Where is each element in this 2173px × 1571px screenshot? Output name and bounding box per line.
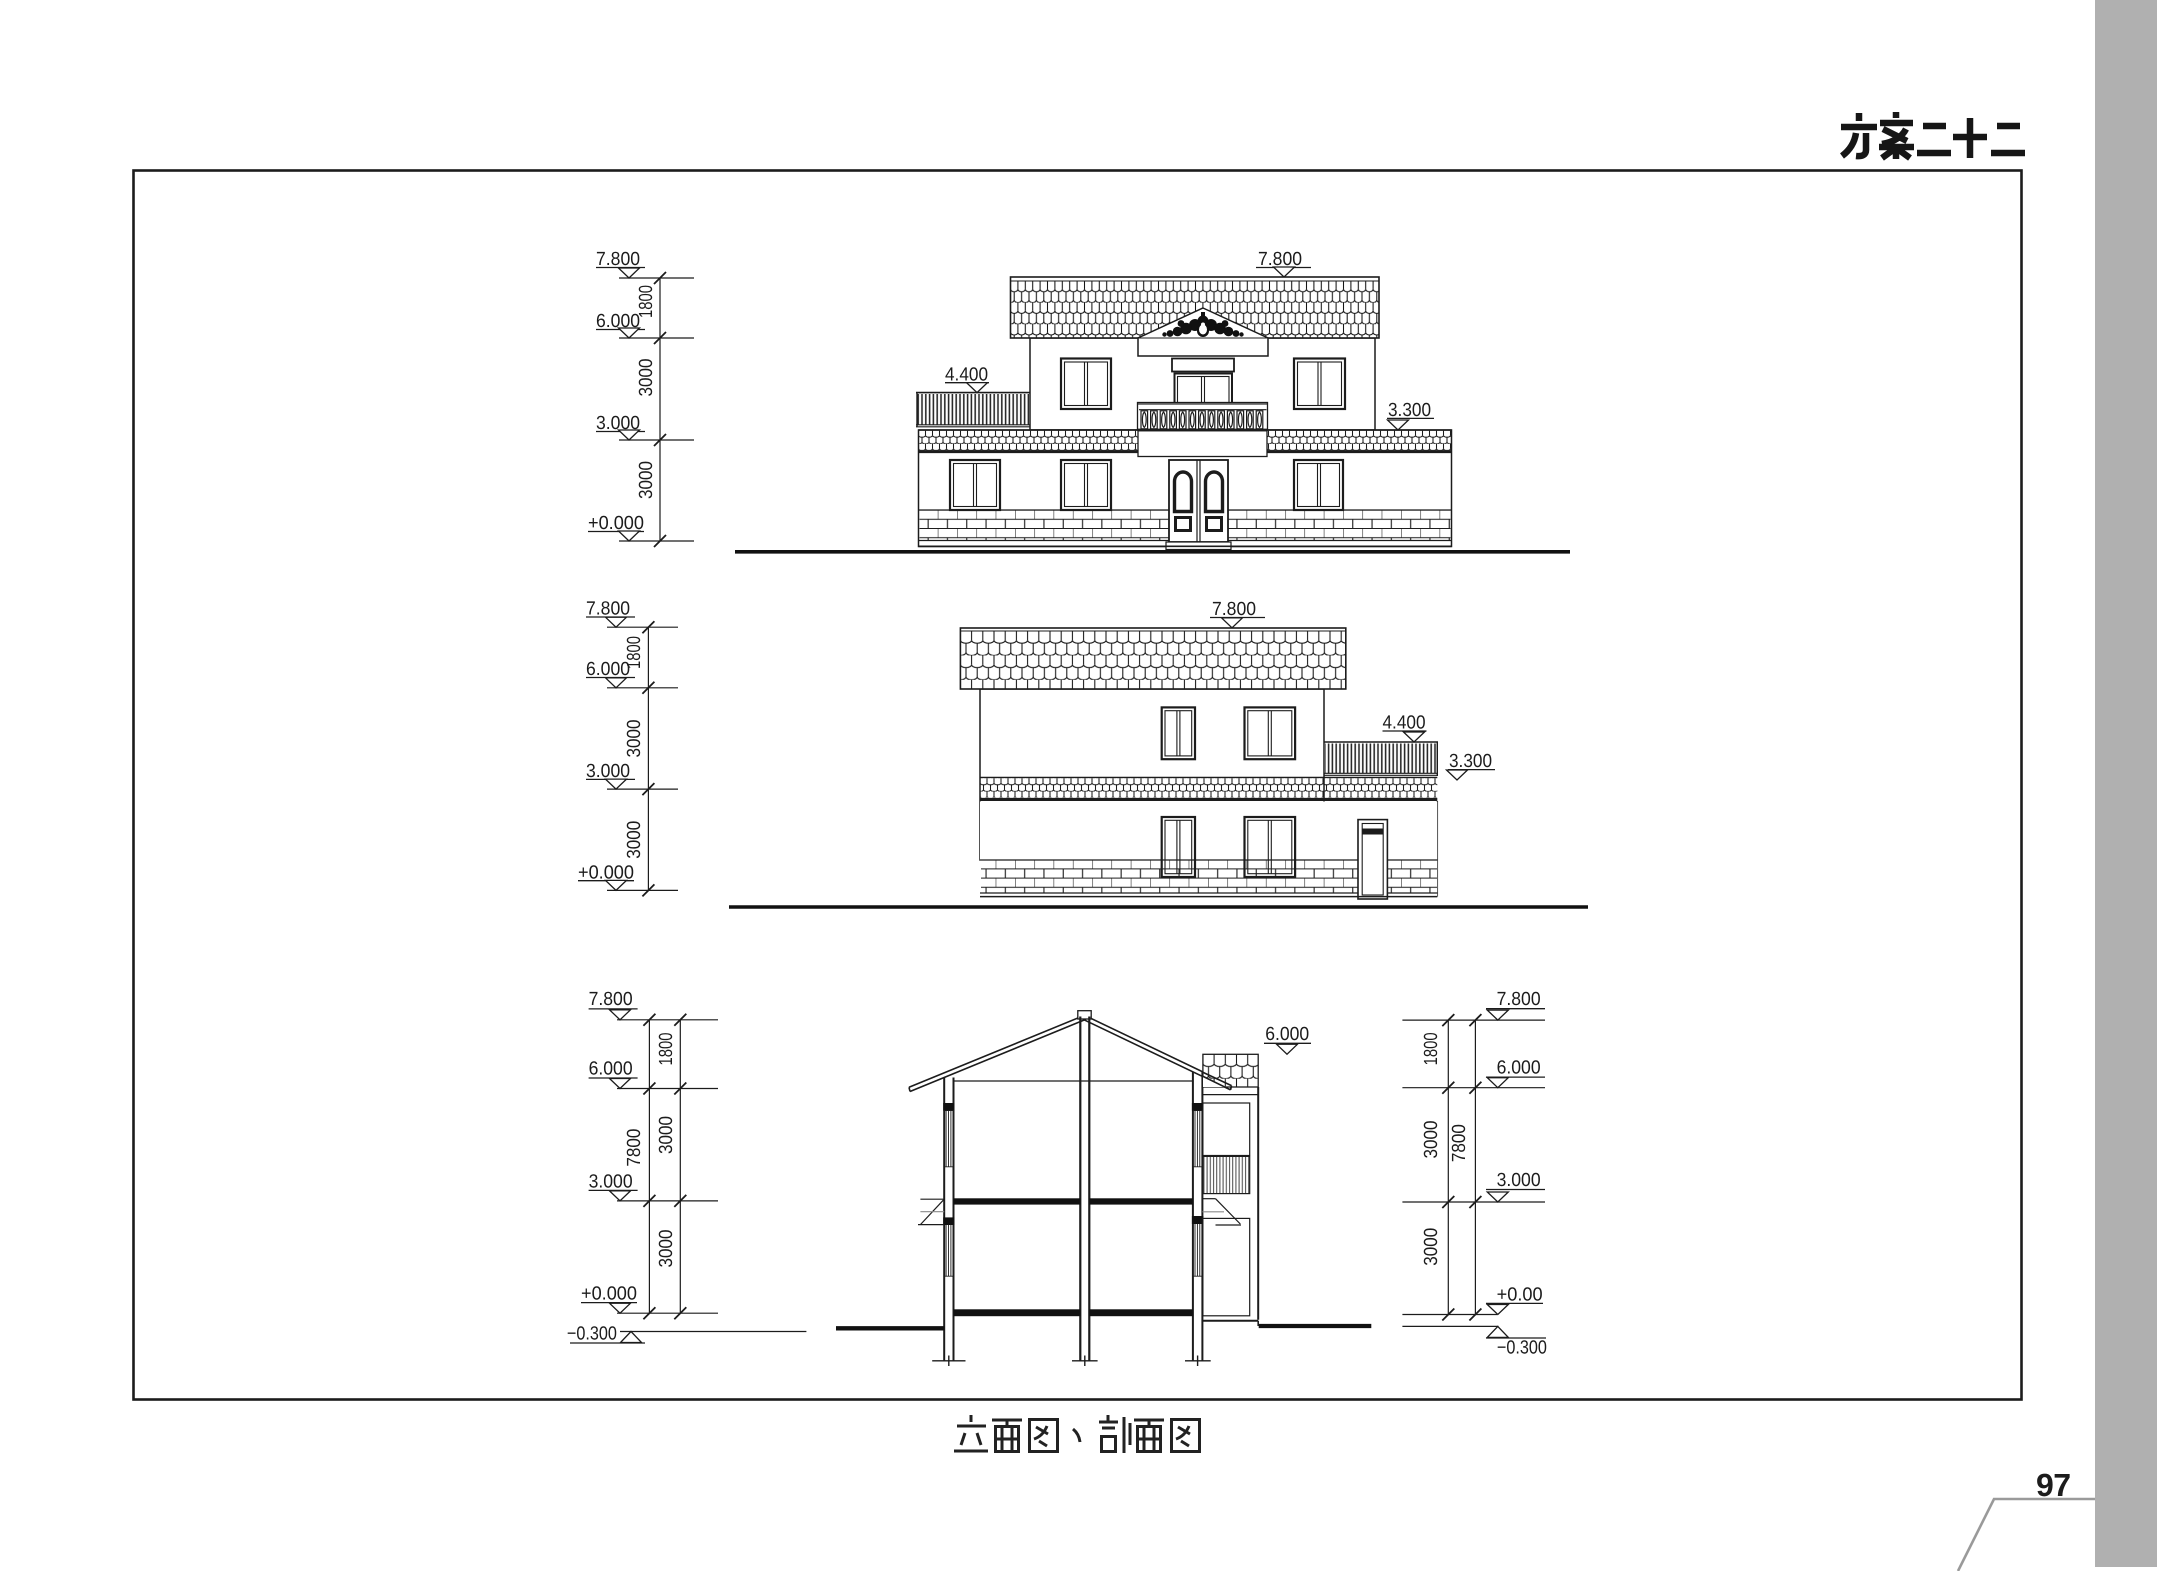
svg-text:6.000: 6.000	[589, 1059, 633, 1080]
svg-text:+0.00: +0.00	[1497, 1284, 1543, 1305]
svg-text:7.800: 7.800	[589, 989, 633, 1010]
svg-text:3000: 3000	[656, 1230, 677, 1268]
svg-text:97: 97	[2036, 1467, 2071, 1503]
svg-text:3000: 3000	[636, 359, 657, 397]
svg-text:−0.300: −0.300	[567, 1324, 617, 1345]
svg-text:7.800: 7.800	[1497, 989, 1541, 1010]
svg-text:+0.000: +0.000	[581, 1283, 637, 1304]
svg-text:3000: 3000	[624, 720, 645, 758]
svg-text:6.000: 6.000	[1497, 1058, 1541, 1079]
svg-text:1800: 1800	[1421, 1032, 1442, 1065]
svg-text:3000: 3000	[636, 461, 657, 499]
svg-text:3.000: 3.000	[589, 1172, 633, 1193]
svg-text:3000: 3000	[1421, 1121, 1442, 1159]
svg-text:6.000: 6.000	[1265, 1024, 1309, 1045]
svg-text:3000: 3000	[624, 821, 645, 859]
svg-text:3000: 3000	[1421, 1228, 1442, 1266]
svg-text:7800: 7800	[624, 1129, 645, 1167]
svg-text:−0.300: −0.300	[1497, 1337, 1547, 1358]
svg-text:1800: 1800	[656, 1033, 677, 1066]
svg-text:7800: 7800	[1449, 1124, 1470, 1162]
svg-text:3000: 3000	[656, 1116, 677, 1154]
svg-text:1800: 1800	[636, 285, 657, 318]
svg-text:1800: 1800	[624, 636, 645, 669]
svg-text:3.000: 3.000	[1497, 1170, 1541, 1191]
